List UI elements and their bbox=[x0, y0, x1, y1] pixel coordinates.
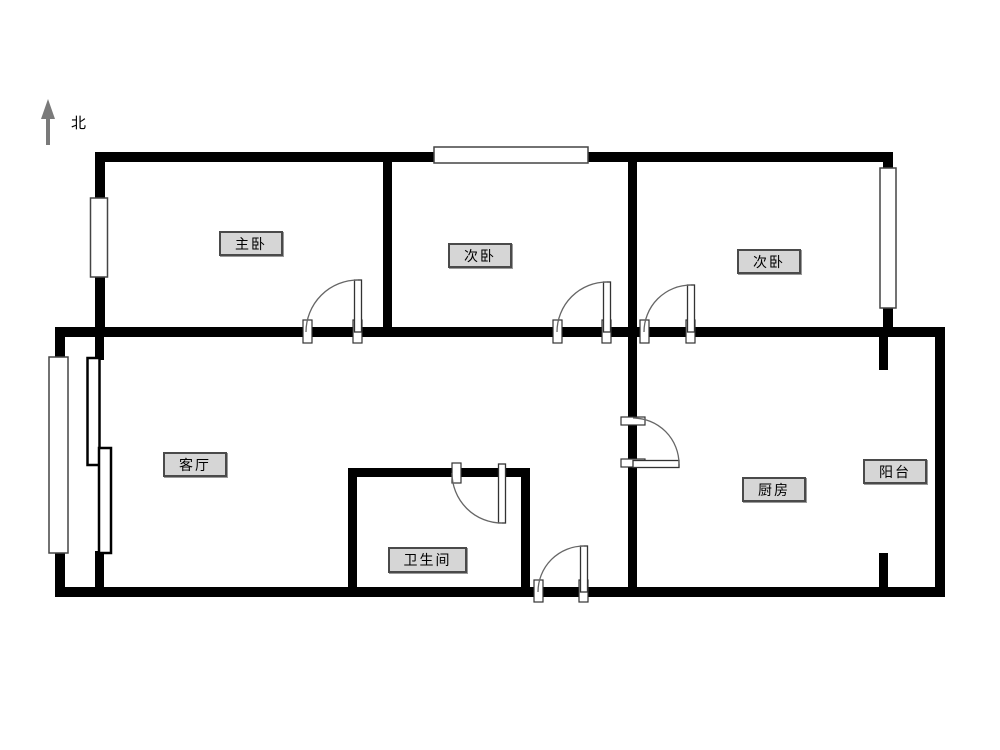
north-label: 北 bbox=[71, 112, 86, 133]
floor-plan-drawing bbox=[0, 0, 1000, 750]
door-leaf-master bbox=[355, 280, 362, 332]
door-arc-master bbox=[306, 280, 358, 332]
door-arc-bedroom2 bbox=[557, 282, 607, 332]
wall-middle-horizontal bbox=[55, 327, 945, 337]
jamb-master-door-left bbox=[303, 320, 312, 343]
room-label-master-bedroom: 主卧 bbox=[219, 231, 283, 256]
room-label-second-bedroom-middle: 次卧 bbox=[448, 243, 512, 268]
door-leaf-entrance bbox=[581, 546, 588, 592]
room-label-kitchen: 厨房 bbox=[742, 477, 806, 502]
sliding-door-living-west bbox=[88, 358, 112, 553]
door-leaf-bathroom bbox=[499, 464, 506, 523]
wall-balcony-divider-stub-top bbox=[879, 327, 888, 370]
sliding-door-panel-outer bbox=[88, 358, 100, 465]
door-leaf-bedroom2 bbox=[604, 282, 611, 332]
wall-balcony-divider-stub-bottom bbox=[879, 553, 888, 597]
wall-bathroom-right bbox=[521, 468, 530, 597]
window-top bbox=[434, 147, 588, 163]
window-master-west bbox=[91, 198, 108, 277]
door-arc-entrance bbox=[538, 546, 584, 592]
room-label-living-room: 客厅 bbox=[163, 452, 227, 477]
door-arc-bedroom3 bbox=[644, 285, 691, 332]
door-leaf-bedroom3 bbox=[688, 285, 695, 332]
door-leaf-kitchen bbox=[633, 461, 679, 468]
room-label-balcony: 阳台 bbox=[863, 459, 927, 484]
wall-bedroom2-bedroom3-divider-and-kitchen-west bbox=[628, 152, 637, 597]
wall-master-bedroom2-divider bbox=[383, 152, 392, 337]
wall-bathroom-left bbox=[348, 468, 357, 597]
walls bbox=[55, 152, 945, 597]
wall-sliding-door-stub-bottom bbox=[95, 551, 104, 597]
room-label-bathroom: 卫生间 bbox=[388, 547, 467, 573]
window-living-west bbox=[49, 357, 68, 553]
room-label-second-bedroom-right: 次卧 bbox=[737, 249, 801, 274]
wall-outer-right bbox=[935, 327, 945, 597]
north-arrow-icon bbox=[41, 99, 55, 145]
wall-bottom bbox=[55, 587, 945, 597]
floor-plan: 北 主卧 次卧 次卧 客厅 卫生间 厨房 阳台 bbox=[0, 0, 1000, 750]
jamb-bathroom-door-left bbox=[452, 463, 461, 483]
sliding-door-panel-inner bbox=[99, 448, 111, 553]
window-bedroom3-east bbox=[880, 168, 896, 308]
wall-sliding-door-stub-top bbox=[95, 327, 104, 360]
